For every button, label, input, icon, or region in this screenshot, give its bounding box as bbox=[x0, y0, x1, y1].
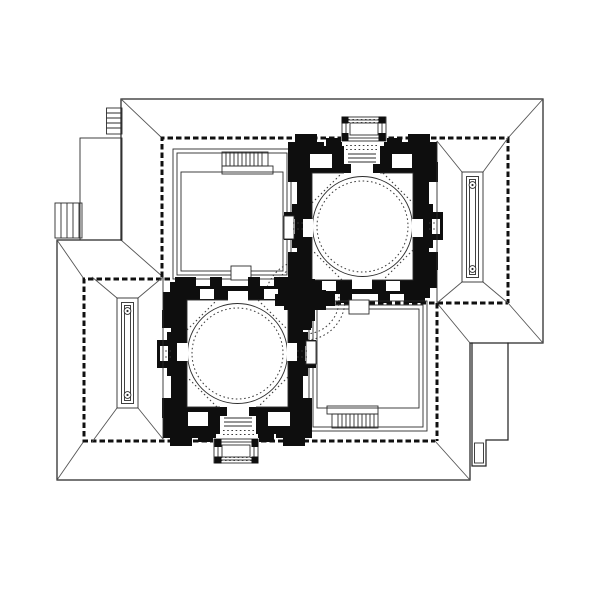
stair-room bbox=[173, 149, 291, 279]
south-door-gap bbox=[352, 279, 372, 289]
pavilion-interior bbox=[173, 116, 508, 303]
domed-hall-floor bbox=[312, 173, 413, 280]
ladder-stair bbox=[107, 108, 123, 134]
ladder-rungs bbox=[107, 113, 123, 128]
side-stair bbox=[55, 203, 82, 238]
southeast-wing-outline bbox=[472, 343, 508, 466]
pool-court bbox=[437, 138, 508, 303]
room-east-door bbox=[284, 216, 294, 239]
wing-step bbox=[475, 443, 484, 463]
entry-vestibule bbox=[344, 141, 380, 174]
side-stair-treads bbox=[61, 203, 79, 238]
east-door-gap bbox=[412, 219, 423, 237]
pool-channel-outer bbox=[467, 177, 479, 278]
entrance-porch bbox=[341, 116, 387, 142]
court-perspective-lines bbox=[437, 138, 508, 303]
floor-plan-drawing bbox=[0, 0, 600, 600]
pool-channel-inner bbox=[470, 180, 476, 275]
northwest-stair-annex bbox=[55, 108, 122, 240]
annex-block bbox=[80, 138, 122, 240]
room-stair bbox=[222, 152, 268, 166]
scanned-plate-page bbox=[0, 0, 600, 600]
stair-landing bbox=[222, 166, 273, 174]
west-door-gap bbox=[303, 219, 313, 237]
lower-pavilion-interior bbox=[92, 277, 427, 464]
